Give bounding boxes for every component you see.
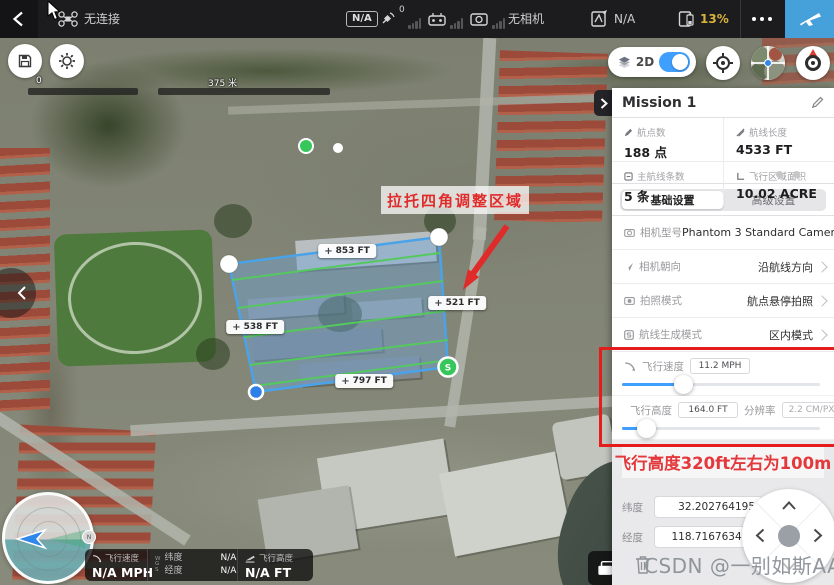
map-rooftop-array [28,88,138,95]
battery-icon [678,10,694,28]
connection-status: 无连接 [84,0,120,38]
minimap-button[interactable] [751,46,785,80]
back-button[interactable] [12,11,24,27]
stat-waypoints: 航点数 188 点 [612,118,723,162]
mouse-cursor [47,1,62,21]
setting-capture-mode[interactable]: 拍照模式 航点悬停拍照 [612,284,834,318]
speed-icon [624,361,636,372]
chevron-right-icon [816,261,827,272]
speed-slider-thumb[interactable] [674,375,693,394]
move-icon: + [324,247,332,256]
altitude-value-box: 164.0 FT [678,402,738,418]
move-icon: + [232,323,240,332]
camera-link-icon [470,12,488,26]
map-trees [196,338,230,370]
panel-collapse-handle[interactable] [594,90,614,116]
watermark-text: CSDN @一别如斯AA [644,550,834,579]
mission-stats: 航点数 188 点 航线长度 4533 FT 主航线条数 5 条 [612,118,834,184]
dpad-center[interactable] [778,525,800,547]
annotation-drag-hint: 拉托四角调整区域 [381,186,529,214]
edge-length-value: 853 FT [336,246,370,256]
stat-main-lines: 主航线条数 5 条 [612,162,723,205]
map-sports-field [54,229,217,366]
setting-route-mode[interactable]: 航线生成模式 区内模式 [612,318,834,352]
telemetry-speed: 飞行速度 N/A MPH [85,549,147,581]
chevron-right-icon [600,98,608,109]
stat-route-length: 航线长度 4533 FT [723,118,834,162]
top-status-bar: 无连接 N/A 0 无相机 N/A [0,0,834,38]
map-scale-end: 375 米 [208,76,237,89]
setting-camera-heading[interactable]: 相机朝向 沿航线方向 [612,250,834,284]
telemetry-altitude: 飞行高度 N/A FT [237,549,313,581]
waypoint-icon [624,128,633,137]
speed-slider-track[interactable] [622,383,820,386]
app-window: 0 375 米 S + 853 FT + 521 FT + 538 FT + [0,0,834,585]
move-icon: + [434,299,442,308]
minimap-position-dot [764,59,772,67]
mission-title: Mission 1 [622,95,696,111]
aircraft-arrow-icon [17,530,45,548]
more-menu-button[interactable] [752,17,772,21]
map-trees [214,204,252,238]
takeoff-plane-icon [798,9,822,29]
locate-button[interactable] [706,46,740,80]
map-scale-start: 0 [36,76,42,86]
flight-altitude-slider-row: 飞行高度 164.0 FT 分辨率 2.2 CM/PX [612,396,834,440]
takeoff-button[interactable] [785,0,834,38]
route-length-icon [736,128,745,137]
compass-north-badge: N [82,530,96,544]
fov-cone [49,530,85,548]
map-rooftop-array [158,88,330,95]
chevron-right-icon [816,295,827,306]
stat-area: 飞行区域面积 10.02 ACRE [723,162,834,205]
dpad-up-icon[interactable] [782,501,796,510]
dpad-left-icon[interactable] [756,529,765,543]
rc-signal-bars [450,18,463,29]
map-trees [318,296,362,332]
capture-mode-icon [624,296,635,305]
save-icon [17,53,33,69]
battery-level: 13% [700,0,729,38]
edge-length-value: 797 FT [353,376,387,386]
map-mode-pill[interactable]: 2D [608,47,696,77]
edge-length-value: 538 FT [244,322,278,332]
satellite-signal-bars [408,18,421,29]
resolution-value-box: 2.2 CM/PX [782,402,834,418]
camera-status: 无相机 [508,0,544,38]
remote-controller-icon [428,12,446,26]
mission-header: Mission 1 [612,88,834,118]
altitude-note-text: 飞行高度320ft左右为100m [622,446,824,478]
flight-mode-icon [590,10,607,28]
altitude-slider-thumb[interactable] [637,419,656,438]
attitude-compass [2,492,94,584]
dpad-right-icon[interactable] [814,529,823,543]
edge-length-pill-left[interactable]: + 538 FT [226,320,284,334]
camera-icon [624,228,635,237]
camera-signal-bars [492,18,505,29]
flight-mode-value: N/A [614,0,635,38]
edge-length-pill-right[interactable]: + 521 FT [428,296,486,310]
watermark: CSDN @一别如斯AA [634,550,834,579]
chevron-right-icon [816,329,827,340]
telemetry-bar: 飞行速度 N/A MPH W G S 纬度N/A 经度N/A 飞行高度 N/A … [85,549,313,581]
gps-mode-badge: N/A [346,11,378,27]
map-settings-button[interactable] [50,44,84,78]
satellite-count: 0 [399,0,405,29]
satellite-icon [380,11,396,27]
wgs-label: W G S [155,552,160,578]
chevron-left-icon [17,286,27,300]
altitude-note-section: 飞行高度320ft左右为100m [612,440,834,484]
altitude-plane-icon [245,554,256,563]
view-mode-label: 2D [636,55,654,69]
2d-toggle-switch[interactable] [659,52,690,72]
heading-icon [624,262,634,272]
telemetry-gps: W G S 纬度N/A 经度N/A [147,549,237,581]
edit-pencil-icon[interactable] [811,96,824,109]
edge-length-value: 521 FT [446,298,480,308]
edge-length-pill-top[interactable]: + 853 FT [318,244,376,258]
edge-length-pill-bottom[interactable]: + 797 FT [335,374,393,388]
flight-speed-slider-row: 飞行速度 11.2 MPH [612,352,834,396]
speed-icon [92,554,102,563]
route-mode-icon [624,330,634,340]
route-lines-icon [624,172,633,181]
speed-value-box: 11.2 MPH [690,358,750,374]
compass-reset-button[interactable] [796,46,830,80]
gear-icon [58,52,76,70]
layers-icon [618,55,631,69]
stats-page-dots[interactable] [776,171,800,178]
altitude-slider-track[interactable] [622,427,820,430]
move-icon: + [341,377,349,386]
area-ruler-icon [736,172,745,181]
crosshair-icon [712,52,734,74]
setting-camera-model[interactable]: 相机型号 Phantom 3 Standard Camera [612,216,834,250]
save-mission-button[interactable] [8,44,42,78]
